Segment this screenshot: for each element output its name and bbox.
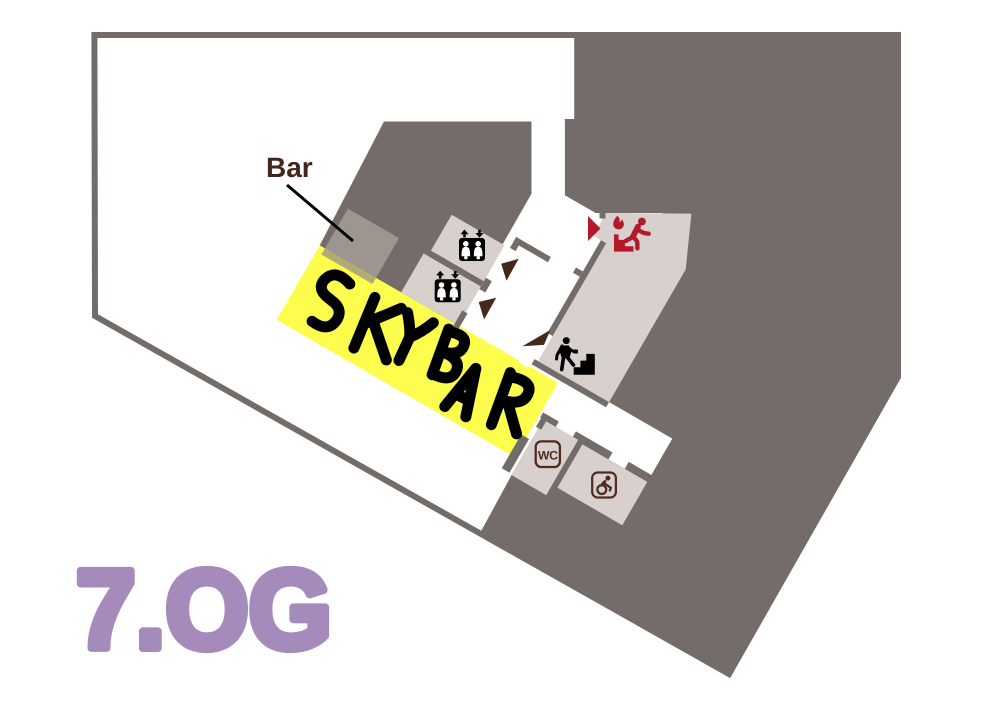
svg-text:Bar: Bar [266, 152, 313, 183]
svg-text:WC: WC [538, 448, 558, 462]
svg-text:7.OG: 7.OG [76, 547, 332, 672]
